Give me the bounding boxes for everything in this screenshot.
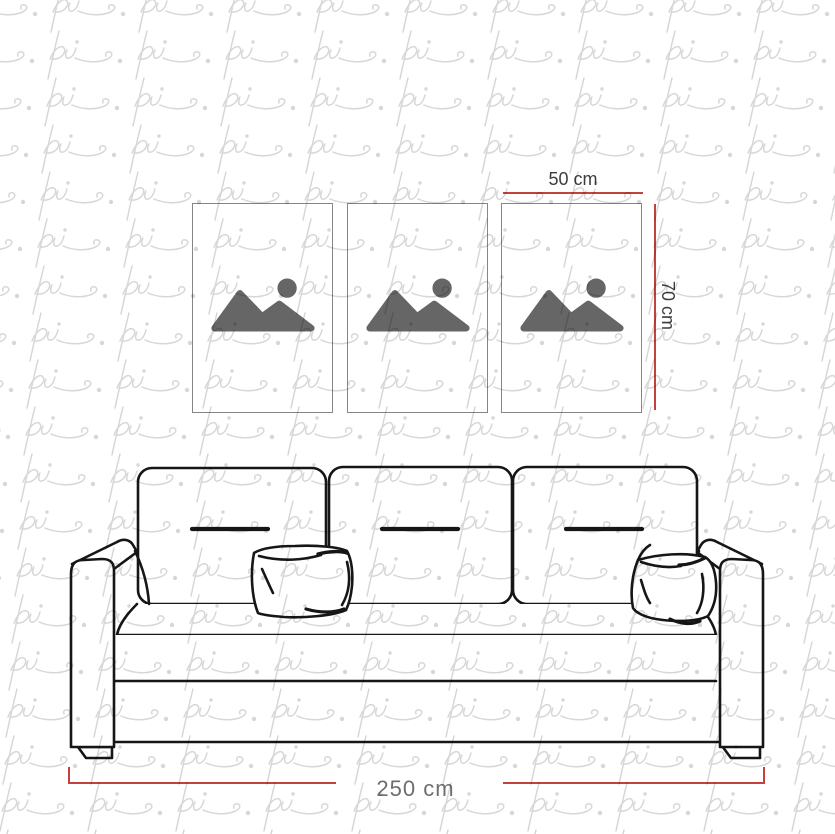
sofa-seat bbox=[114, 604, 721, 742]
product-mockup: 50 cm 70 cm 250 cm bbox=[0, 0, 835, 834]
sofa-pillow-left bbox=[252, 546, 352, 618]
sofa-foot-left bbox=[78, 747, 112, 758]
sofa-back-cushions bbox=[138, 467, 697, 604]
sofa-line-drawing bbox=[0, 0, 835, 834]
